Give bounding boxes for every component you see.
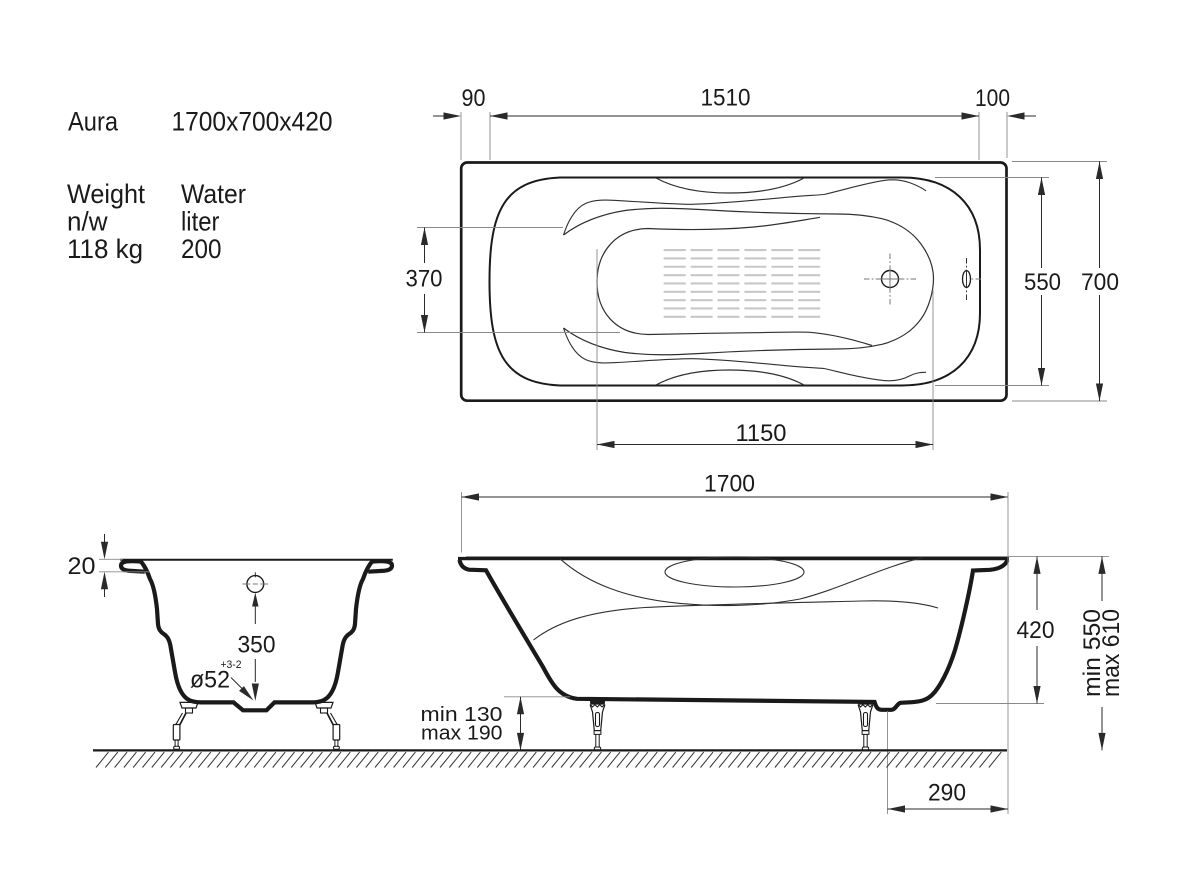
svg-text:max 190: max 190 [421, 722, 503, 745]
svg-text:liter: liter [181, 207, 220, 237]
svg-text:Aura: Aura [68, 107, 119, 137]
svg-text:100: 100 [975, 85, 1010, 112]
svg-text:370: 370 [406, 266, 443, 293]
svg-text:20: 20 [68, 553, 96, 580]
svg-text:1510: 1510 [701, 85, 751, 112]
svg-text:290: 290 [928, 780, 966, 807]
svg-text:n/w: n/w [67, 207, 108, 237]
svg-text:90: 90 [462, 85, 486, 112]
svg-text:1700: 1700 [704, 471, 755, 498]
svg-text:Weight: Weight [67, 179, 145, 209]
svg-text:420: 420 [1017, 617, 1055, 644]
svg-text:+3-2: +3-2 [221, 659, 242, 671]
svg-text:1700x700x420: 1700x700x420 [172, 107, 333, 137]
svg-text:Water: Water [181, 179, 246, 209]
svg-text:118 kg: 118 kg [67, 234, 143, 264]
svg-text:550: 550 [1024, 269, 1061, 296]
svg-text:1150: 1150 [736, 420, 787, 447]
svg-text:max 610: max 610 [1098, 609, 1125, 697]
svg-text:200: 200 [181, 234, 222, 264]
svg-text:700: 700 [1081, 269, 1119, 296]
svg-text:350: 350 [238, 632, 276, 659]
